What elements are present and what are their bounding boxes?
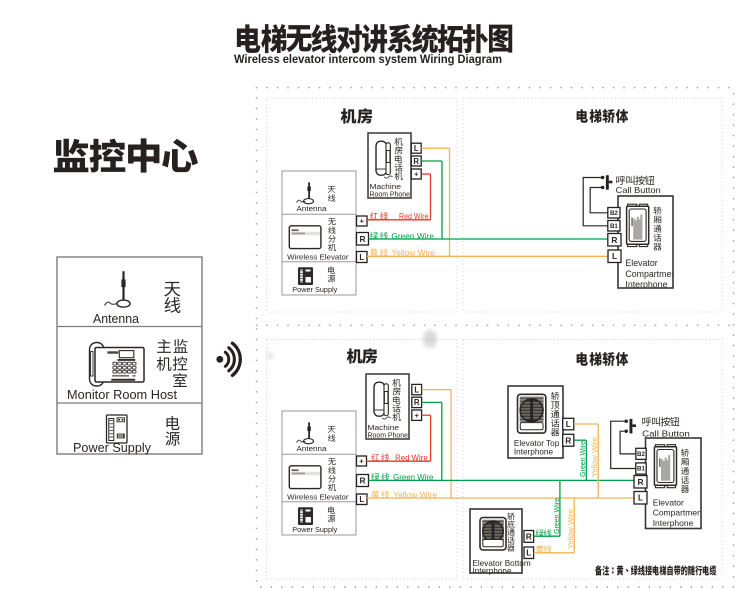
svg-text:R: R: [414, 398, 420, 407]
svg-text:Interphone: Interphone: [514, 448, 554, 457]
svg-text:Green Wire: Green Wire: [578, 441, 587, 477]
svg-text:R: R: [526, 531, 532, 541]
svg-text:L: L: [526, 549, 531, 558]
svg-text:R: R: [611, 235, 617, 245]
svg-text:L: L: [414, 385, 419, 394]
svg-text:Green Wire: Green Wire: [393, 473, 433, 482]
svg-text:Red Wire: Red Wire: [399, 212, 428, 221]
svg-text:L: L: [414, 144, 419, 153]
svg-text:R: R: [359, 234, 365, 244]
svg-text:Compartment: Compartment: [653, 508, 705, 518]
svg-text:Wireless Elevator: Wireless Elevator: [287, 493, 349, 502]
svg-text:Call Button: Call Button: [642, 429, 690, 439]
svg-text:Room Phone: Room Phone: [368, 430, 409, 439]
svg-text:Interphone: Interphone: [653, 518, 694, 528]
svg-text:Green Wire: Green Wire: [391, 232, 434, 241]
svg-text:Elevator: Elevator: [653, 498, 684, 508]
svg-text:Interphone: Interphone: [472, 566, 512, 575]
svg-text:+: +: [359, 457, 364, 466]
svg-text:B1: B1: [610, 223, 618, 230]
svg-text:Wireless Elevator: Wireless Elevator: [287, 253, 349, 262]
svg-text:R: R: [359, 476, 365, 486]
svg-text:R: R: [637, 477, 643, 487]
svg-text:+: +: [414, 411, 419, 420]
svg-text:Wireless elevator intercom sys: Wireless elevator intercom system Wiring…: [234, 52, 502, 66]
svg-text:B1: B1: [637, 466, 645, 473]
svg-text:Yellow Wire: Yellow Wire: [391, 249, 435, 258]
svg-text:Room Phone: Room Phone: [370, 189, 411, 198]
svg-text:Green Wire: Green Wire: [552, 498, 561, 534]
svg-text:L: L: [638, 494, 643, 503]
svg-text:Compartment: Compartment: [625, 269, 679, 279]
svg-text:L: L: [359, 253, 364, 262]
svg-text:Antenna: Antenna: [93, 312, 139, 326]
svg-text:Call Button: Call Button: [616, 185, 661, 195]
svg-text:+: +: [360, 217, 365, 226]
svg-text:L: L: [359, 495, 364, 504]
svg-text:R: R: [565, 435, 571, 445]
svg-text:Antenna: Antenna: [297, 444, 328, 453]
svg-text:Monitor Room Host: Monitor Room Host: [67, 387, 177, 402]
svg-text:Yellow Wire: Yellow Wire: [566, 509, 575, 549]
svg-text:Antenna: Antenna: [297, 204, 328, 213]
svg-text:Power Supply: Power Supply: [292, 285, 337, 294]
svg-text:Power Supply: Power Supply: [292, 525, 337, 534]
svg-text:L: L: [612, 252, 617, 261]
svg-text:Power Supply: Power Supply: [73, 440, 152, 455]
svg-text:Yellow Wire: Yellow Wire: [393, 490, 437, 499]
svg-text:R: R: [413, 157, 419, 166]
svg-text:Red Wire: Red Wire: [395, 453, 428, 462]
svg-text:B2: B2: [637, 451, 645, 458]
svg-text:Elevator: Elevator: [625, 258, 657, 268]
svg-text:L: L: [566, 420, 571, 429]
svg-text:+: +: [414, 170, 419, 179]
svg-text:B2: B2: [610, 210, 618, 217]
svg-text:Yellow Wire: Yellow Wire: [590, 437, 599, 477]
